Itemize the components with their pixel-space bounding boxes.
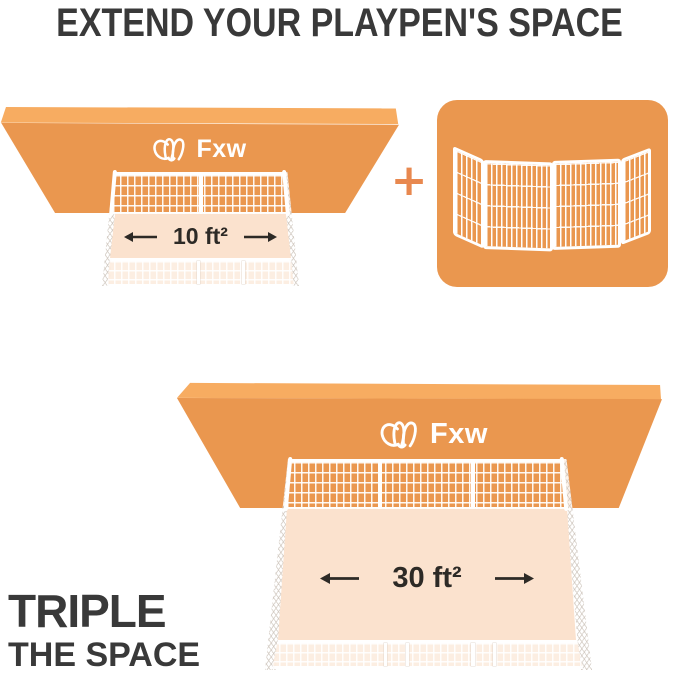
pen-post (384, 643, 388, 666)
right-arrow-icon (243, 231, 277, 243)
product-infographic: EXTEND YOUR PLAYPEN'S SPACE Fxw (0, 0, 679, 673)
left-arrow-icon (124, 231, 158, 243)
right-arrow-icon (494, 572, 534, 585)
pen-post (199, 172, 203, 214)
fence-panel (621, 147, 651, 245)
pen-floor: 10 ft² (110, 214, 291, 258)
fence-panel (552, 159, 621, 250)
footer-headline: TRIPLE (8, 584, 166, 638)
pen-front-wall (107, 258, 294, 287)
fence-panel (453, 146, 484, 249)
brand-logo: Fxw (354, 412, 512, 456)
pen-post (242, 261, 246, 284)
brand-logo: Fxw (126, 130, 272, 168)
addon-panels-card (437, 100, 668, 287)
pen-post (471, 459, 475, 509)
mat-top-edge (0, 104, 399, 124)
area-label: 30 ft² (392, 562, 461, 595)
pen-front-wall (272, 640, 583, 669)
footer-subheadline: THE SPACE (8, 636, 200, 673)
brand-logo-text: Fxw (196, 135, 246, 164)
page-title: EXTEND YOUR PLAYPEN'S SPACE (51, 1, 628, 46)
area-measurement: 10 ft² (110, 223, 291, 250)
pen-floor: 30 ft² (278, 509, 576, 640)
pen-back-wall (113, 172, 288, 214)
dog-logo-icon (378, 417, 422, 451)
pen-post (197, 261, 201, 284)
area-label: 10 ft² (173, 223, 228, 250)
pen-post (471, 643, 475, 666)
left-arrow-icon (320, 572, 360, 585)
area-measurement: 30 ft² (278, 562, 576, 595)
pen-post (406, 643, 410, 666)
pen-post (378, 459, 382, 509)
fence-panel (483, 160, 553, 251)
pen-back-wall (287, 459, 567, 509)
mat-top-edge (176, 381, 662, 400)
plus-icon: + (388, 156, 430, 206)
dog-logo-icon (151, 134, 189, 164)
brand-logo-text: Fxw (430, 418, 488, 451)
pen-post (493, 643, 497, 666)
